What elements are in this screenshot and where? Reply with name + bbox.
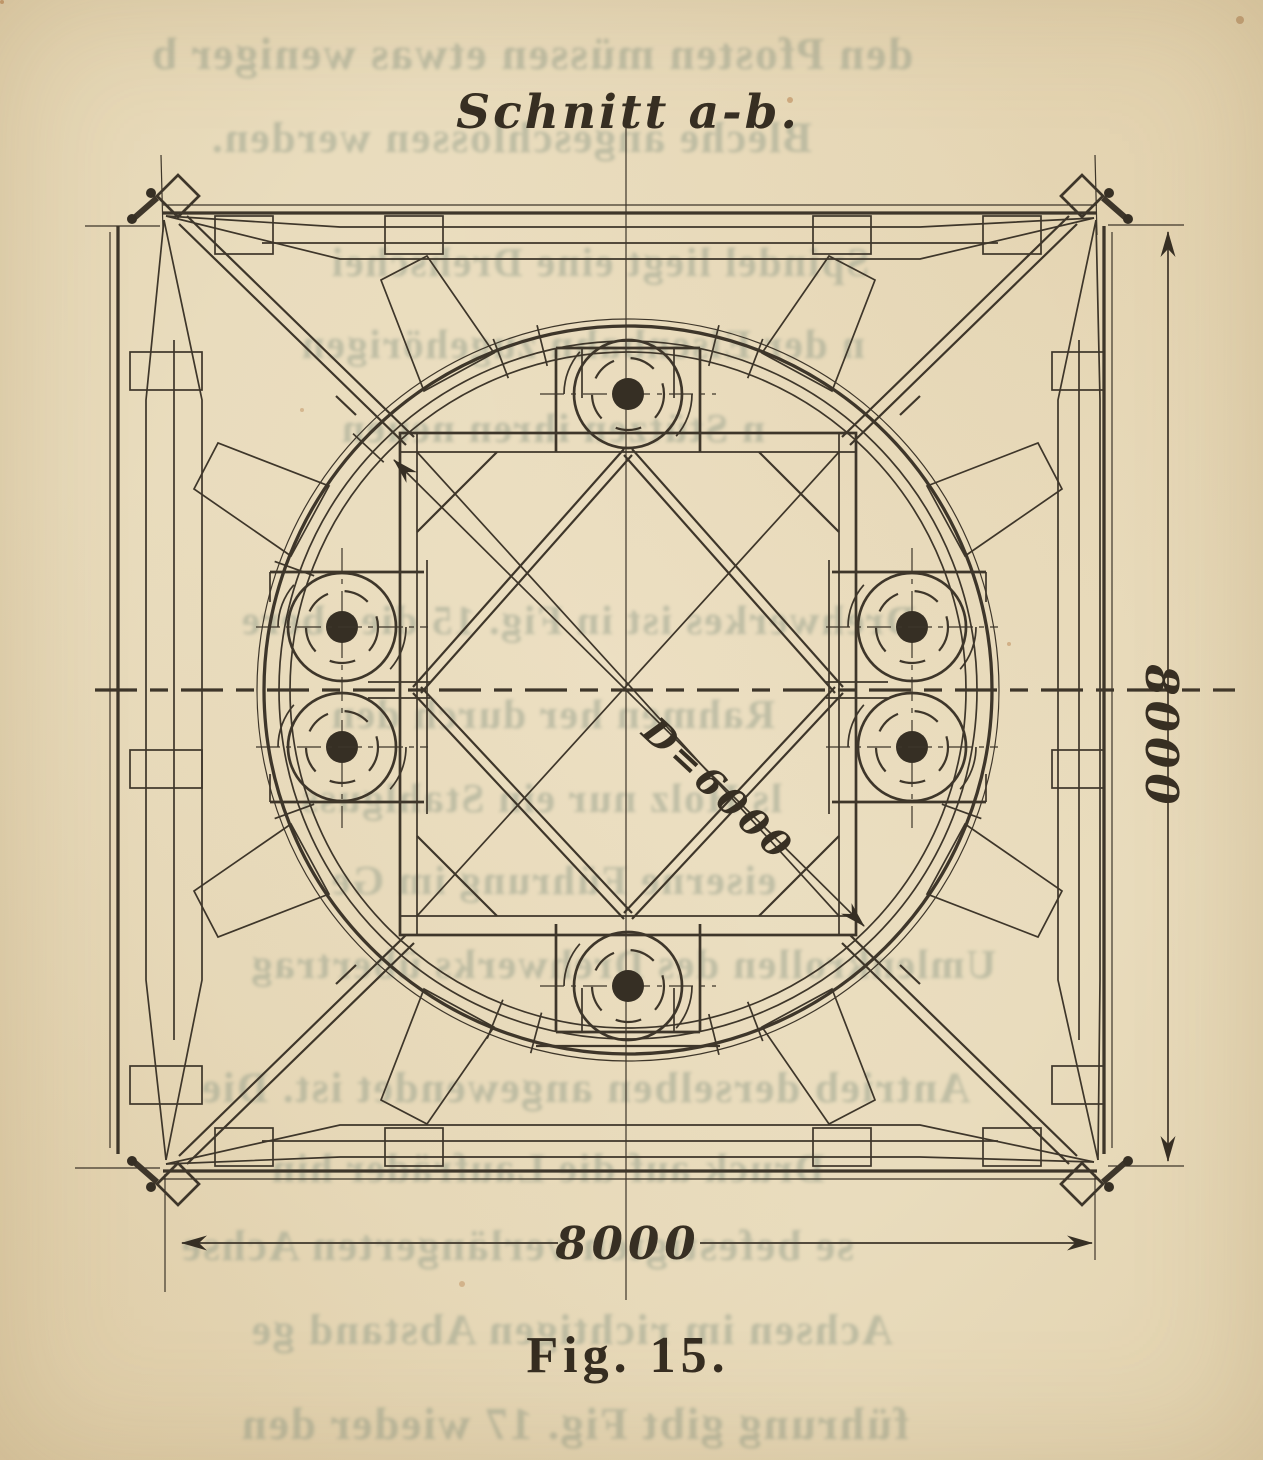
frame-top-truss <box>163 205 1097 259</box>
roller-left-pair <box>270 560 430 814</box>
roller-centerline-crosses <box>256 627 998 747</box>
dimension-diameter-label: D=6000 <box>633 708 803 870</box>
technical-drawing: 8000 8000 D=6000 Schnitt a-b. Fig. 15. <box>0 0 1263 1460</box>
roller-right-pair <box>826 560 986 814</box>
dimension-bottom: 8000 <box>182 1217 1092 1270</box>
figure-caption: Fig. 15. <box>526 1327 729 1384</box>
drawing-title: Schnitt a-b. <box>456 85 800 140</box>
dimension-right: 8000 <box>1135 232 1188 1161</box>
dimension-bottom-label: 8000 <box>554 1217 700 1270</box>
inner-square <box>400 433 856 935</box>
frame-bottom-truss <box>163 1125 1097 1179</box>
dimension-right-label: 8000 <box>1135 663 1188 809</box>
book-page: den Pfosten müssen etwas weniger b Blech… <box>0 0 1263 1460</box>
dimension-diameter: D=6000 <box>394 460 864 926</box>
